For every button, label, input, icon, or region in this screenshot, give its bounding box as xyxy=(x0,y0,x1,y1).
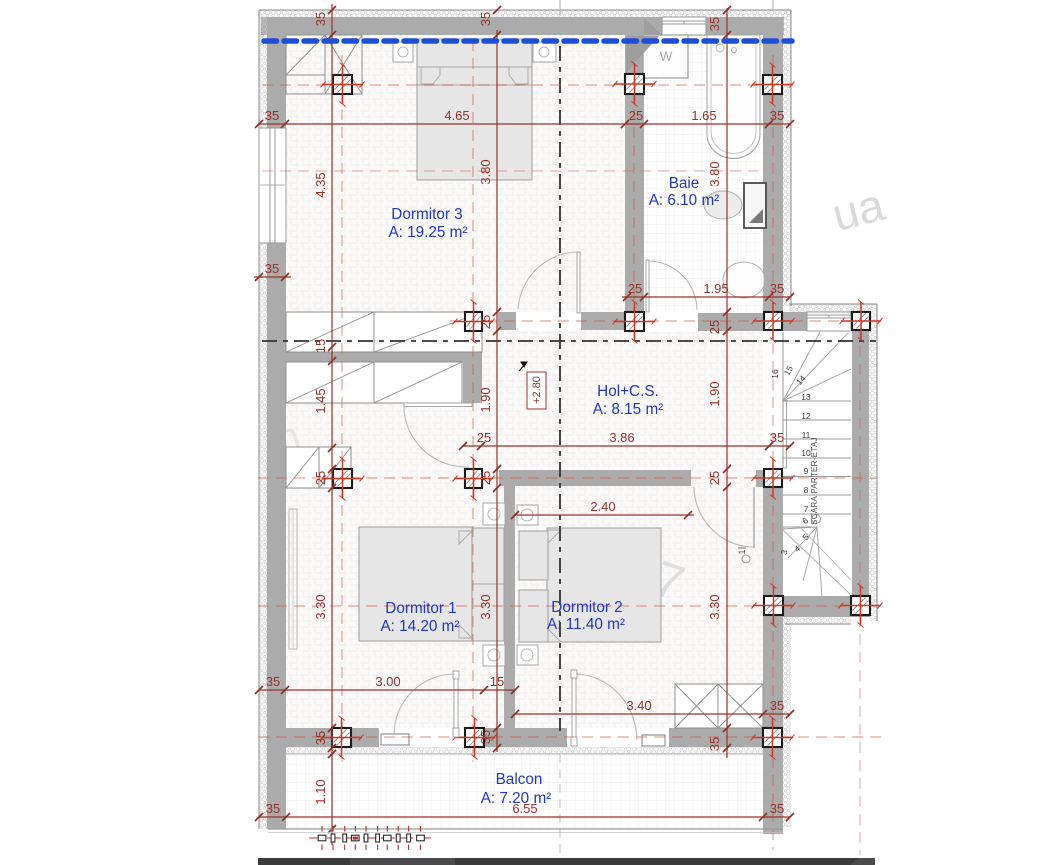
svg-text:3.00: 3.00 xyxy=(375,674,400,689)
svg-text:1: 1 xyxy=(737,549,747,554)
svg-text:A: 11.40 m²: A: 11.40 m² xyxy=(547,616,625,633)
svg-text:W: W xyxy=(660,49,673,64)
svg-text:Hol+C.S.: Hol+C.S. xyxy=(597,383,659,400)
svg-text:25: 25 xyxy=(707,471,722,485)
svg-text:A: 7.20 m²: A: 7.20 m² xyxy=(481,790,552,807)
svg-text:4.35: 4.35 xyxy=(313,172,328,197)
svg-text:12: 12 xyxy=(801,411,811,421)
svg-text:1.90: 1.90 xyxy=(478,387,493,412)
svg-text:Dormitor 1: Dormitor 1 xyxy=(385,600,456,617)
svg-text:3.86: 3.86 xyxy=(609,430,634,445)
svg-text:25: 25 xyxy=(478,471,493,485)
svg-text:1.90: 1.90 xyxy=(707,381,722,406)
svg-text:25: 25 xyxy=(477,430,491,445)
svg-text:25: 25 xyxy=(313,471,328,485)
svg-text:35: 35 xyxy=(313,12,328,26)
svg-text:9: 9 xyxy=(804,466,809,476)
svg-text:3.40: 3.40 xyxy=(626,698,651,713)
svg-text:+2.80: +2.80 xyxy=(531,376,543,404)
svg-text:3.80: 3.80 xyxy=(478,159,493,184)
svg-text:1.65: 1.65 xyxy=(691,108,716,123)
svg-text:25: 25 xyxy=(478,315,493,329)
svg-text:3.80: 3.80 xyxy=(707,161,722,186)
svg-text:35: 35 xyxy=(770,430,784,445)
svg-text:13: 13 xyxy=(801,392,811,402)
svg-text:35: 35 xyxy=(770,698,784,713)
svg-text:35: 35 xyxy=(266,674,280,689)
svg-text:25: 25 xyxy=(707,320,722,334)
svg-text:A: 14.20 m²: A: 14.20 m² xyxy=(380,618,459,635)
svg-text:35: 35 xyxy=(265,108,279,123)
svg-text:16: 16 xyxy=(770,369,780,379)
svg-text:4.65: 4.65 xyxy=(444,108,469,123)
svg-text:35: 35 xyxy=(770,801,784,816)
svg-text:7: 7 xyxy=(804,504,809,514)
svg-text:1.10: 1.10 xyxy=(313,779,328,804)
svg-text:SCARA PARTER-ETAJ: SCARA PARTER-ETAJ xyxy=(810,437,819,525)
svg-text:8: 8 xyxy=(804,485,809,495)
svg-text:35: 35 xyxy=(707,737,722,751)
svg-text:3.30: 3.30 xyxy=(707,594,722,619)
svg-text:1.95: 1.95 xyxy=(703,281,728,296)
svg-text:35: 35 xyxy=(266,801,280,816)
svg-text:Balcon: Balcon xyxy=(496,771,543,788)
svg-text:A: 19.25 m²: A: 19.25 m² xyxy=(388,224,467,241)
svg-text:35: 35 xyxy=(770,108,784,123)
svg-text:15: 15 xyxy=(313,339,328,353)
svg-text:35: 35 xyxy=(313,731,328,745)
svg-text:3.30: 3.30 xyxy=(478,594,493,619)
svg-text:A: 8.15 m²: A: 8.15 m² xyxy=(593,401,664,418)
svg-text:Baie: Baie xyxy=(669,175,700,192)
svg-text:35: 35 xyxy=(770,281,784,296)
svg-text:Dormitor 2: Dormitor 2 xyxy=(551,599,622,616)
svg-text:35: 35 xyxy=(265,261,279,276)
svg-text:3.30: 3.30 xyxy=(313,594,328,619)
svg-text:Dormitor 3: Dormitor 3 xyxy=(391,206,462,223)
svg-text:35: 35 xyxy=(478,730,493,744)
svg-text:25: 25 xyxy=(628,281,642,296)
svg-text:25: 25 xyxy=(629,108,643,123)
svg-text:35: 35 xyxy=(707,17,722,31)
svg-text:A: 6.10 m²: A: 6.10 m² xyxy=(649,192,720,209)
svg-text:2.40: 2.40 xyxy=(590,499,615,514)
svg-text:35: 35 xyxy=(478,12,493,26)
svg-text:1.45: 1.45 xyxy=(313,388,328,413)
